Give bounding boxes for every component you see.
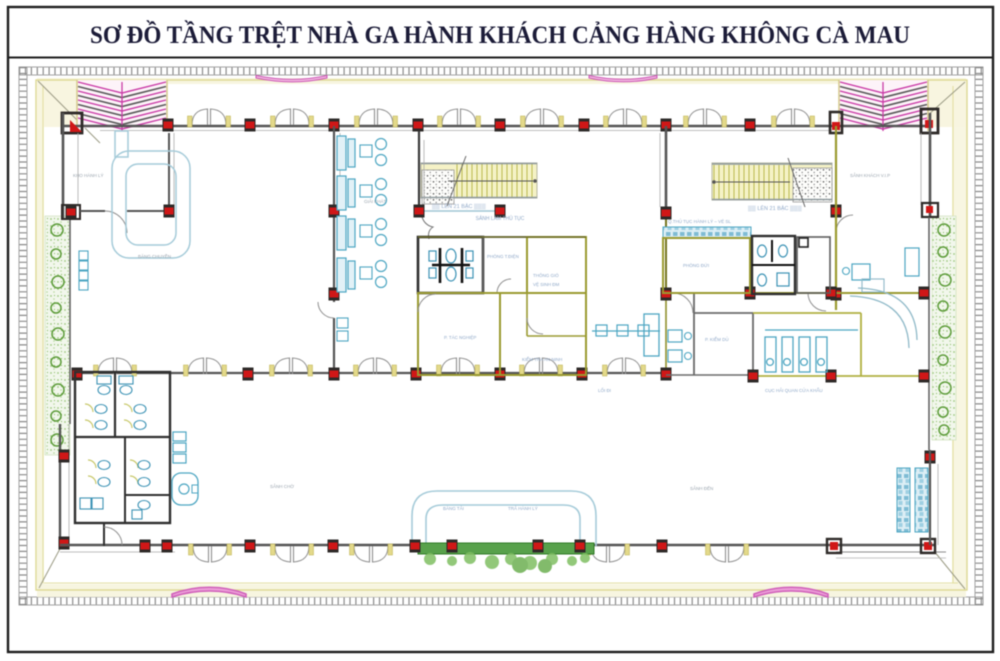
svg-text:LỐI ĐI: LỐI ĐI (598, 387, 611, 393)
svg-text:KHO HÀNH LÝ: KHO HÀNH LÝ (73, 172, 104, 178)
svg-text:TRẢ HÀNH LÝ: TRẢ HÀNH LÝ (508, 505, 538, 511)
svg-text:BĂNG TẢI: BĂNG TẢI (443, 505, 464, 511)
svg-text:SẢNH LÀM THỦ TỤC: SẢNH LÀM THỦ TỤC (476, 215, 525, 222)
svg-text:SẢNH CHỜ: SẢNH CHỜ (270, 483, 294, 489)
svg-text:Q.THỦ TỤC HÀNH LÝ – VÉ SL: Q.THỦ TỤC HÀNH LÝ – VÉ SL (668, 218, 731, 224)
svg-text:▒▒ LÊN 21 BẬC ▒▒▒: ▒▒ LÊN 21 BẬC ▒▒▒ (748, 204, 802, 212)
svg-text:PHÒNG T.ĐIỆN: PHÒNG T.ĐIỆN (487, 252, 519, 259)
svg-text:▒▒ LÊN 21 BẬC ▒▒▒: ▒▒ LÊN 21 BẬC ▒▒▒ (432, 202, 486, 210)
svg-text:CỤC HẢI QUAN CỬA KHẨU: CỤC HẢI QUAN CỬA KHẨU (765, 387, 823, 393)
svg-text:VỆ SINH ĐM: VỆ SINH ĐM (533, 280, 560, 287)
svg-text:SƠ ĐỒ TẦNG TRỆT NHÀ GA HÀNH KH: SƠ ĐỒ TẦNG TRỆT NHÀ GA HÀNH KHÁCH CẢNG H… (90, 20, 910, 49)
svg-text:P. KIỂM DỦ: P. KIỂM DỦ (705, 336, 729, 342)
svg-text:KIỂM TRA AN NINH: KIỂM TRA AN NINH (522, 356, 562, 362)
svg-text:P. TÁC NGHIỆP: P. TÁC NGHIỆP (444, 333, 476, 340)
svg-text:BĂNG CHUYỀN: BĂNG CHUYỀN (138, 253, 171, 259)
svg-text:SẢNH ĐẾN: SẢNH ĐẾN (690, 485, 713, 491)
svg-text:THÔNG GIÓ: THÔNG GIÓ (533, 272, 559, 278)
svg-text:SẢNH KHÁCH V.I.P: SẢNH KHÁCH V.I.P (850, 172, 890, 178)
svg-text:GIẢI KHÁT: GIẢI KHÁT (364, 198, 387, 204)
svg-text:PHÒNG ĐỨI: PHÒNG ĐỨI (683, 262, 709, 268)
